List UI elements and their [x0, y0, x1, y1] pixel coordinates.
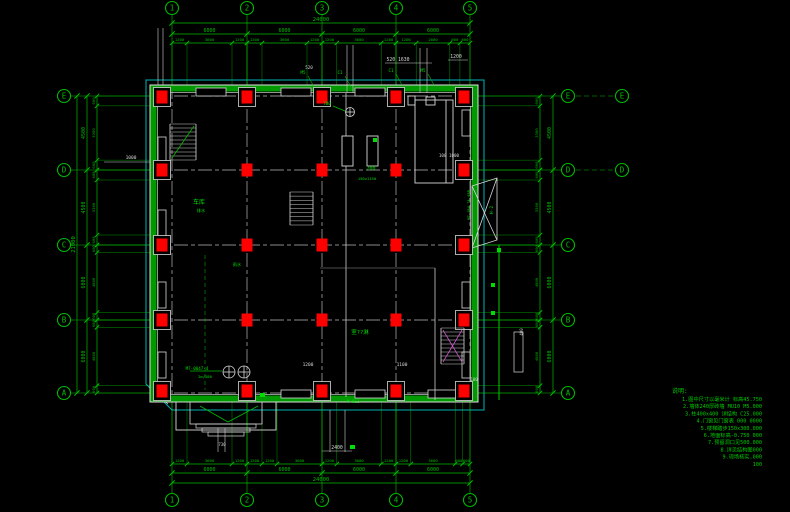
- dim-major-label: 6000: [81, 350, 87, 362]
- dim-minor-label: 600: [91, 245, 96, 253]
- dim-minor-label: 600: [534, 319, 539, 327]
- dim-minor-label: 1200: [325, 458, 335, 463]
- column: [157, 164, 168, 177]
- dim-minor-label: 3600: [205, 458, 215, 463]
- column: [459, 164, 470, 177]
- dim-major-label: 4500: [547, 201, 553, 213]
- grid-bubble-label: B: [62, 316, 67, 325]
- dim-major-label: 6000: [203, 28, 215, 34]
- column: [317, 385, 328, 398]
- grid-bubble-label: E: [566, 92, 571, 101]
- dim-minor-label: 600: [461, 37, 469, 42]
- dim-minor-label: 4800: [534, 277, 539, 287]
- note-line: 4.门窗见门窗表 000 0000: [697, 417, 762, 425]
- dim-minor-label: 4800: [91, 351, 96, 361]
- dim-major-label: 6000: [547, 276, 553, 288]
- note-line: 9.现场核实.000: [723, 453, 763, 461]
- tag-label: M5: [300, 70, 306, 75]
- note-line: 3.柱400x400 详结构 C25.000: [685, 409, 762, 417]
- dim-minor-label: 600: [91, 319, 96, 327]
- dim-minor-label: 3600: [354, 458, 364, 463]
- column: [391, 385, 402, 398]
- grid-bubble-label: 3: [320, 4, 325, 13]
- dim-minor-label: 1200: [175, 458, 185, 463]
- note-line: 1.图中尺寸以毫米计 标高45.750: [682, 395, 762, 403]
- grid-bubble-label: D: [566, 166, 571, 175]
- dim-minor-label: 2000: [428, 37, 438, 42]
- column: [242, 314, 253, 327]
- cad-drawing-stage: 1122334455EEDDCCBBAAED240006000600060006…: [0, 0, 790, 512]
- grid-bubble-label: 2: [245, 496, 250, 505]
- tag-label: C1: [388, 68, 394, 73]
- grid-bubble-label: C: [62, 241, 67, 250]
- tag-label: C1: [337, 70, 343, 75]
- dim-minor-label: 600: [451, 37, 459, 42]
- grid-bubble-label: C: [566, 241, 571, 250]
- column: [157, 91, 168, 104]
- dim-minor-label: 600: [91, 171, 96, 179]
- dim-minor-label: 1200: [399, 458, 409, 463]
- column: [391, 239, 402, 252]
- grid-bubble-label: 1: [170, 4, 175, 13]
- dim-minor-label: 1200: [401, 37, 411, 42]
- column: [242, 239, 253, 252]
- grid-bubble-label: 1: [170, 496, 175, 505]
- dim-minor-label: 3300: [534, 128, 539, 138]
- column: [242, 164, 253, 177]
- shaft: [408, 96, 453, 183]
- annotation: 1200: [303, 362, 314, 368]
- note-line: 8.详见结构图000: [720, 445, 762, 453]
- column: [391, 164, 402, 177]
- grid-bubble-label: 3: [320, 496, 325, 505]
- dim-minor-label: 1200: [384, 458, 394, 463]
- annotation: 排水: [197, 207, 206, 214]
- dim-minor-label: 600: [91, 312, 96, 320]
- dim-minor-label: 600: [534, 245, 539, 253]
- exterior-walls: [150, 85, 478, 402]
- column: [459, 385, 470, 398]
- dim-minor-label: 3600: [205, 37, 215, 42]
- annotation: 室??淋: [351, 328, 369, 336]
- annotation: M7-184 7A-43B: [466, 189, 471, 219]
- dim-major-label: 6000: [203, 467, 215, 473]
- dim-minor-label: 600: [91, 385, 96, 393]
- dim-minor-label: 1200: [384, 37, 394, 42]
- dim-minor-label: 600: [91, 236, 96, 244]
- dim-major-label: 6000: [353, 467, 365, 473]
- dim-minor-label: 600: [534, 161, 539, 169]
- annotation: 2m/180: [198, 374, 212, 379]
- dim-minor-label: 1200: [310, 37, 320, 42]
- dim-minor-label: 1200: [250, 37, 260, 42]
- column: [317, 164, 328, 177]
- dim-minor-label: 4800: [534, 351, 539, 361]
- dim-minor-label: 1200: [250, 458, 260, 463]
- dim-minor-label: 600: [534, 236, 539, 244]
- dim-minor-label: 3600: [295, 458, 305, 463]
- grid-bubble-label: 5: [468, 496, 473, 505]
- column: [459, 314, 470, 327]
- tag-label: M5: [420, 68, 426, 73]
- dim-minor-label: 1200: [235, 37, 245, 42]
- grid-bubble-label: 5: [468, 4, 473, 13]
- dim-minor-label: 1200: [325, 37, 335, 42]
- grid-bubble-label: 2: [245, 4, 250, 13]
- dim-major-label: 6000: [278, 467, 290, 473]
- dim-major-label: 6000: [81, 276, 87, 288]
- dim-total-label: 21000: [71, 236, 77, 253]
- annotation: H-2: [489, 206, 495, 214]
- dim-total-label: 24000: [313, 17, 330, 23]
- annotation: 200: [366, 166, 375, 172]
- dim-minor-label: 600: [534, 312, 539, 320]
- interior-partitions: [320, 93, 523, 400]
- annotation: 700: [323, 101, 331, 106]
- dim-minor-label: 3600: [428, 458, 438, 463]
- dim-minor-label: 1200: [265, 458, 275, 463]
- dim-major-label: 6000: [547, 350, 553, 362]
- annotation: 1200: [450, 54, 462, 60]
- annotation: 雨水: [233, 261, 242, 268]
- annotation: 150x1150: [358, 176, 377, 181]
- column: [242, 385, 253, 398]
- dim-minor-label: 600: [91, 161, 96, 169]
- annotation: 1000: [126, 155, 137, 161]
- dim-major-label: 6000: [353, 28, 365, 34]
- stair-diagonal: [172, 126, 194, 158]
- dim-minor-label: 4800: [91, 277, 96, 287]
- annotation: 400: [519, 328, 524, 336]
- annotation: 730: [218, 442, 226, 447]
- column: [242, 91, 253, 104]
- grid-bubble-label: E: [62, 92, 67, 101]
- grid-bubble-label: A: [566, 389, 571, 398]
- column: [459, 239, 470, 252]
- annotation: M-812: [347, 399, 360, 404]
- dim-minor-label: 600: [91, 97, 96, 105]
- wall-windows: [158, 88, 470, 398]
- annotation: 520: [305, 65, 313, 70]
- annotation: 2400: [331, 445, 343, 451]
- grid-bubble-label: B: [566, 316, 571, 325]
- dim-minor-label: 3600: [354, 37, 364, 42]
- annotation: 1100: [397, 362, 408, 368]
- dim-minor-label: 3600: [280, 37, 290, 42]
- column: [317, 239, 328, 252]
- note-line: 6.地面标高-0.750 000: [704, 431, 762, 439]
- note-line: 7.预留洞口见500.000: [708, 438, 762, 446]
- note-line: 100: [753, 462, 762, 468]
- dim-major-label: 6000: [278, 28, 290, 34]
- dim-minor-label: 600: [534, 97, 539, 105]
- grid-bubble-label: D: [620, 166, 625, 175]
- dim-major-label: 4500: [81, 201, 87, 213]
- dim-total-label: 24000: [313, 477, 330, 483]
- dim-minor-label: 3300: [91, 128, 96, 138]
- dim-minor-label: 1200: [235, 458, 245, 463]
- dim-minor-label: 1200: [175, 37, 185, 42]
- note-line: 2.墙体240厚砖墙 MU10 M5.000: [683, 402, 762, 410]
- column: [391, 91, 402, 104]
- annotation: 100 1000: [439, 153, 460, 158]
- column: [317, 314, 328, 327]
- annotation: 100: [470, 377, 478, 382]
- grid-bubble-label: E: [620, 92, 625, 101]
- grid-bubble-label: 4: [394, 496, 399, 505]
- annotation: M7-0047-4: [186, 366, 209, 371]
- drain-symbol: [333, 106, 355, 117]
- column: [157, 314, 168, 327]
- dim-minor-label: 600: [534, 385, 539, 393]
- column: [391, 314, 402, 327]
- dim-minor-label: 600: [534, 171, 539, 179]
- notes-header: 说明:: [672, 387, 688, 395]
- grid-bubble-label: D: [62, 166, 67, 175]
- annotation: 520 1630: [386, 57, 409, 63]
- column: [157, 239, 168, 252]
- dim-minor-label: 3300: [91, 202, 96, 212]
- entrance-porch: [176, 402, 276, 436]
- dim-major-label: 4500: [81, 127, 87, 139]
- column: [459, 91, 470, 104]
- dim-major-label: 6000: [427, 467, 439, 473]
- dim-minor-label: 600: [463, 458, 471, 463]
- grid-bubble-label: A: [62, 389, 67, 398]
- annotation: 车库: [193, 198, 205, 206]
- dim-major-label: 4500: [547, 127, 553, 139]
- column: [157, 385, 168, 398]
- dim-minor-label: 3300: [534, 202, 539, 212]
- grid-bubble-label: 4: [394, 4, 399, 13]
- dim-major-label: 6000: [427, 28, 439, 34]
- note-line: 5.楼梯踏步150x300.000: [701, 424, 762, 432]
- cad-canvas[interactable]: 1122334455EEDDCCBBAAED240006000600060006…: [0, 0, 790, 512]
